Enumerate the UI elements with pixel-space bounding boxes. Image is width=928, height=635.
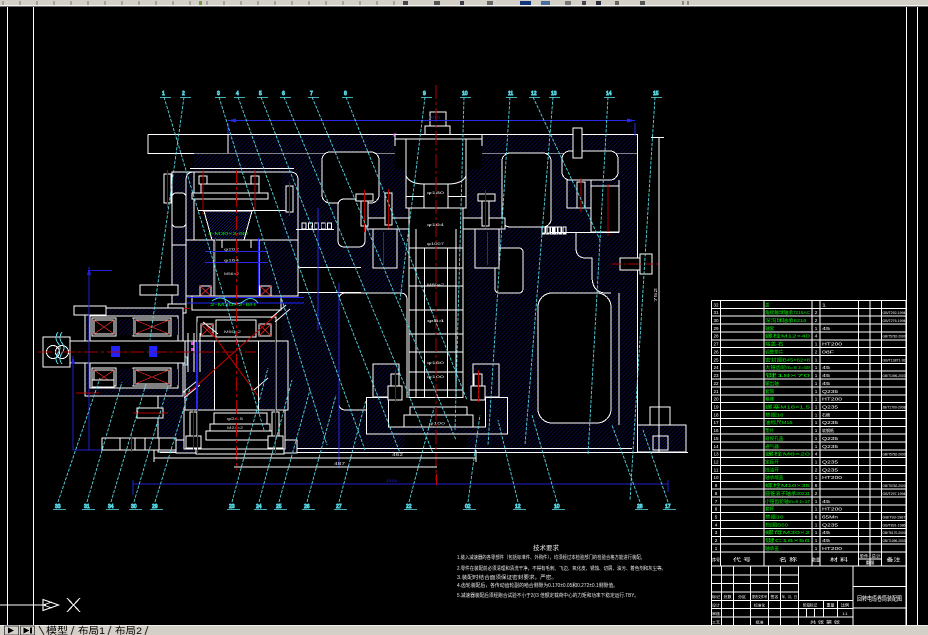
svg-text:φ54: φ54	[427, 318, 446, 323]
svg-text:4: 4	[715, 522, 718, 527]
svg-text:20: 20	[713, 397, 719, 402]
svg-text:GB/T1096-2003: GB/T1096-2003	[883, 539, 906, 543]
svg-text:φ180: φ180	[427, 190, 445, 195]
svg-text:2: 2	[815, 318, 818, 323]
svg-text:10: 10	[713, 475, 719, 480]
svg-text:套杯: 套杯	[765, 506, 775, 513]
svg-text:螺塞M18×1.5: 螺塞M18×1.5	[765, 403, 811, 410]
svg-text:GB/T5782-2000: GB/T5782-2000	[883, 335, 906, 339]
svg-text:8: 8	[344, 91, 347, 97]
svg-text:数量: 数量	[812, 557, 820, 564]
svg-text:技术要求: 技术要求	[533, 543, 560, 552]
svg-text:签名: 签名	[771, 594, 779, 599]
svg-text:HT200: HT200	[822, 475, 843, 480]
svg-text:GB/T6170-2000: GB/T6170-2000	[883, 531, 906, 535]
svg-text:φ1007: φ1007	[427, 241, 445, 246]
svg-text:布局2: 布局2	[115, 625, 142, 635]
svg-text:1:1: 1:1	[842, 612, 847, 616]
svg-text:1: 1	[815, 538, 818, 543]
svg-text:4: 4	[236, 91, 239, 97]
svg-text:2: 2	[715, 538, 718, 543]
svg-text:14: 14	[713, 444, 719, 449]
svg-text:工艺: 工艺	[712, 620, 720, 625]
svg-text:1: 1	[815, 381, 818, 386]
svg-text:φ100: φ100	[429, 421, 446, 426]
svg-text:12: 12	[713, 460, 719, 465]
svg-text:3.装配时结合面须保证密封要求，严密。: 3.装配时结合面须保证密封要求，严密。	[457, 574, 557, 581]
svg-text:螺栓M10×35: 螺栓M10×35	[765, 482, 811, 489]
svg-text:45: 45	[822, 326, 831, 331]
svg-text:27: 27	[713, 342, 719, 347]
svg-text:9: 9	[715, 483, 718, 488]
svg-text:2: 2	[815, 467, 818, 472]
svg-text:13: 13	[551, 91, 557, 97]
svg-text:33: 33	[55, 504, 61, 510]
svg-text:GB/T297-1994: GB/T297-1994	[883, 492, 906, 496]
svg-text:6: 6	[282, 91, 285, 97]
svg-text:2-M30×2-6H: 2-M30×2-6H	[208, 231, 248, 236]
svg-text:487: 487	[334, 461, 346, 466]
svg-text:GB/T5782-2000: GB/T5782-2000	[883, 484, 906, 488]
svg-text:7: 7	[715, 499, 718, 504]
svg-text:28: 28	[713, 334, 719, 339]
svg-text:13: 13	[713, 452, 719, 457]
svg-text:23: 23	[229, 504, 235, 510]
svg-text:HT200: HT200	[822, 546, 843, 551]
svg-text:φ164: φ164	[224, 258, 240, 263]
svg-text:HT200: HT200	[822, 397, 843, 402]
svg-text:21: 21	[713, 389, 719, 394]
svg-text:45: 45	[822, 373, 831, 378]
svg-text:GB/T276-1994: GB/T276-1994	[883, 319, 906, 323]
svg-text:30: 30	[131, 504, 137, 510]
svg-text:1: 1	[815, 436, 818, 441]
svg-text:处数: 处数	[724, 594, 732, 599]
svg-text:挡油环: 挡油环	[765, 466, 779, 473]
svg-text:26: 26	[713, 349, 719, 354]
svg-text:1: 1	[715, 546, 718, 551]
svg-text:备注: 备注	[887, 557, 901, 564]
svg-text:M56×2: M56×2	[224, 271, 240, 276]
svg-text:标记: 标记	[712, 594, 720, 599]
svg-text:19: 19	[713, 404, 719, 409]
svg-text:分区: 分区	[738, 594, 746, 599]
svg-text:φ164: φ164	[427, 222, 445, 227]
svg-text:1: 1	[815, 546, 818, 551]
svg-text:32: 32	[713, 302, 719, 307]
svg-text:M24×2: M24×2	[227, 425, 244, 430]
svg-text:752: 752	[653, 287, 658, 302]
svg-text:Q235: Q235	[822, 522, 839, 527]
svg-text:3: 3	[715, 530, 718, 535]
svg-text:1: 1	[815, 420, 818, 425]
svg-text:2: 2	[815, 349, 818, 354]
svg-text:1: 1	[815, 389, 818, 394]
svg-text:31: 31	[713, 310, 719, 315]
svg-text:1: 1	[815, 522, 818, 527]
svg-text:密封圈B45×62×8: 密封圈B45×62×8	[765, 356, 811, 363]
svg-text:1: 1	[815, 412, 818, 417]
svg-text:30: 30	[713, 318, 719, 323]
svg-text:盖: 盖	[765, 301, 770, 307]
svg-text:石棉: 石棉	[822, 411, 830, 418]
svg-text:12: 12	[515, 504, 521, 510]
svg-text:1: 1	[815, 404, 818, 409]
svg-text:垫圈18: 垫圈18	[765, 411, 784, 418]
svg-text:HT200: HT200	[822, 507, 843, 512]
svg-text:批准: 批准	[756, 620, 764, 625]
svg-text:角接触球轴承7216AC: 角接触球轴承7216AC	[765, 309, 811, 316]
svg-text:GB/T5782-2000: GB/T5782-2000	[883, 453, 906, 457]
svg-text:Q235: Q235	[822, 404, 839, 409]
svg-text:22: 22	[406, 504, 412, 510]
svg-text:GB/T1096-2003: GB/T1096-2003	[883, 374, 906, 378]
svg-text:8: 8	[715, 491, 718, 496]
svg-text:重量: 重量	[866, 559, 875, 565]
svg-text:JB/T1700-2008: JB/T1700-2008	[883, 405, 906, 409]
svg-text:15: 15	[653, 91, 659, 97]
svg-text:单件: 单件	[860, 554, 869, 559]
svg-text:重量: 重量	[827, 603, 835, 608]
svg-text:25: 25	[276, 504, 282, 510]
svg-text:GB/T292-1994: GB/T292-1994	[883, 311, 906, 315]
svg-text:φ202: φ202	[224, 247, 240, 252]
svg-text:轴承盖: 轴承盖	[765, 545, 779, 552]
svg-text:4: 4	[815, 452, 818, 457]
svg-text:1: 1	[815, 530, 818, 535]
svg-text:17: 17	[665, 504, 671, 510]
svg-text:圆锥滚子轴承30211: 圆锥滚子轴承30211	[765, 490, 810, 497]
svg-text:Q235: Q235	[822, 444, 839, 449]
svg-text:7: 7	[310, 91, 313, 97]
svg-text:26: 26	[304, 504, 310, 510]
svg-text:29: 29	[152, 504, 158, 510]
svg-text:11: 11	[508, 91, 513, 97]
svg-text:M80×2: M80×2	[427, 282, 445, 287]
svg-text:Q235: Q235	[822, 389, 839, 394]
svg-text:31: 31	[84, 504, 90, 510]
svg-text:1: 1	[815, 397, 818, 402]
svg-text:2.零件在装配前必须清理和清洗干净，不得有毛刺、飞边、氧化皮: 2.零件在装配前必须清理和清洗干净，不得有毛刺、飞边、氧化皮、锈蚀、切屑、油污、…	[457, 565, 666, 572]
svg-text:2-M30×2-6H: 2-M30×2-6H	[210, 302, 256, 307]
svg-text:Q235: Q235	[822, 460, 839, 465]
svg-text:08F: 08F	[822, 349, 835, 354]
svg-text:GB/T93-1987: GB/T93-1987	[883, 516, 906, 520]
svg-text:1: 1	[815, 428, 818, 433]
svg-text:2: 2	[182, 91, 185, 97]
svg-text:φ24.5: φ24.5	[227, 416, 244, 421]
svg-text:大锥齿轮m=6 z=58: 大锥齿轮m=6 z=58	[765, 364, 811, 371]
svg-text:14: 14	[606, 91, 612, 97]
svg-text:1: 1	[815, 507, 818, 512]
svg-text:调整垫片: 调整垫片	[765, 348, 784, 355]
svg-text:挡圈B60: 挡圈B60	[765, 521, 789, 528]
svg-text:18: 18	[713, 412, 719, 417]
svg-text:2: 2	[815, 491, 818, 496]
svg-text:2: 2	[815, 310, 818, 315]
svg-text:轴套: 轴套	[765, 325, 775, 332]
svg-text:Q235: Q235	[822, 467, 839, 472]
svg-text:15: 15	[713, 436, 719, 441]
svg-text:1: 1	[815, 499, 818, 504]
svg-text:GB/T891-1986: GB/T891-1986	[883, 523, 906, 527]
svg-text:29: 29	[713, 326, 719, 331]
svg-text:GB/T13871-92: GB/T13871-92	[883, 358, 906, 362]
svg-text:套筒: 套筒	[765, 388, 775, 395]
svg-text:1518: 1518	[386, 478, 398, 483]
svg-text:键18×70: 键18×70	[765, 372, 811, 379]
svg-text:24: 24	[713, 365, 719, 370]
svg-text:螺栓M12×40: 螺栓M12×40	[765, 333, 811, 340]
svg-text:Q235: Q235	[822, 436, 839, 441]
svg-text:27: 27	[336, 504, 342, 510]
svg-text:软钢纸: 软钢纸	[822, 427, 835, 434]
svg-text:1: 1	[815, 342, 818, 347]
svg-text:17: 17	[713, 420, 719, 425]
svg-text:M50×2: M50×2	[224, 329, 242, 334]
svg-text:布局1: 布局1	[78, 625, 105, 635]
svg-text:1: 1	[815, 444, 818, 449]
svg-text:5: 5	[259, 91, 262, 97]
svg-text:3: 3	[217, 91, 220, 97]
svg-text:螺栓M8×20: 螺栓M8×20	[765, 451, 811, 458]
svg-text:1: 1	[815, 373, 818, 378]
svg-text:45: 45	[822, 530, 831, 535]
svg-text:6: 6	[715, 507, 718, 512]
svg-text:11: 11	[714, 467, 719, 472]
svg-text:462: 462	[392, 452, 404, 457]
svg-text:22: 22	[713, 381, 719, 386]
svg-text:45: 45	[822, 381, 831, 386]
svg-text:45: 45	[822, 538, 831, 543]
svg-text:12: 12	[531, 91, 537, 97]
svg-text:1: 1	[815, 475, 818, 480]
svg-text:深沟球轴承6216: 深沟球轴承6216	[765, 317, 807, 324]
svg-text:定距环: 定距环	[765, 459, 779, 466]
svg-text:1: 1	[815, 326, 818, 331]
svg-text:模型: 模型	[46, 625, 69, 635]
svg-text:45: 45	[822, 365, 831, 370]
svg-text:10: 10	[554, 504, 560, 510]
svg-text:端盖-右: 端盖-右	[765, 341, 784, 348]
svg-text:通气器: 通气器	[765, 443, 779, 450]
svg-text:回转电缆卷筒装配图: 回转电缆卷筒装配图	[857, 594, 902, 603]
svg-text:16: 16	[713, 428, 719, 433]
svg-text:年、月、日: 年、月、日	[782, 594, 797, 599]
svg-text:设计: 设计	[712, 603, 720, 608]
svg-text:螺母M30×2: 螺母M30×2	[765, 529, 811, 536]
svg-text:输出轴: 输出轴	[765, 380, 779, 387]
svg-text:1: 1	[815, 460, 818, 465]
svg-text:5.减速器装配后须经跑合试验不小于2(/3 倍额定载荷中心的: 5.减速器装配后须经跑合试验不小于2(/3 倍额定载荷中心的力矩和功率下稳定运行…	[457, 592, 639, 599]
svg-text:28: 28	[637, 504, 643, 510]
svg-text:4.齿轮装配后，各传动齿轮副的啮合侧隙为0.170±0.05: 4.齿轮装配后，各传动齿轮副的啮合侧隙为0.170±0.05和0.272±0.1…	[457, 582, 618, 589]
svg-text:23: 23	[713, 373, 719, 378]
svg-text:1: 1	[815, 365, 818, 370]
svg-text:油标尺M16: 油标尺M16	[765, 419, 793, 426]
svg-text:1010: 1010	[428, 115, 441, 120]
svg-text:1.装入减速器的各零部件（包括标准件、外购件），均须经过本检: 1.装入减速器的各零部件（包括标准件、外购件），均须经过本检验部门的检验合格方能…	[457, 554, 645, 561]
svg-text:6: 6	[815, 515, 818, 520]
svg-text:34: 34	[108, 504, 114, 510]
svg-text:序号: 序号	[712, 557, 720, 564]
svg-text:标准化: 标准化	[754, 603, 765, 608]
svg-text:轴承端盖: 轴承端盖	[765, 474, 784, 481]
svg-text:键C16×56: 键C16×56	[765, 537, 811, 544]
svg-text:65Mn: 65Mn	[822, 515, 839, 520]
svg-text:02: 02	[465, 504, 471, 510]
svg-text:箱座: 箱座	[765, 396, 775, 403]
svg-text:小锥齿轮轴m=6 z=17: 小锥齿轮轴m=6 z=17	[765, 498, 810, 505]
svg-text:24: 24	[256, 504, 262, 510]
svg-text:材 料: 材 料	[830, 557, 848, 564]
svg-text:25: 25	[713, 357, 719, 362]
svg-text:9: 9	[423, 91, 426, 97]
svg-text:10: 10	[462, 91, 468, 97]
svg-text:1: 1	[162, 91, 165, 97]
svg-text:45: 45	[822, 499, 831, 504]
svg-text:6: 6	[815, 483, 818, 488]
svg-text:比例: 比例	[841, 603, 849, 608]
svg-text:窥视孔盖: 窥视孔盖	[765, 435, 784, 442]
svg-text:垫圈10: 垫圈10	[765, 514, 784, 521]
svg-text:共 张 第 张: 共 张 第 张	[810, 620, 840, 625]
svg-text:1: 1	[815, 357, 818, 362]
svg-text:5: 5	[715, 515, 718, 520]
svg-text:阶段标记: 阶段标记	[803, 603, 817, 608]
svg-text:Q235: Q235	[822, 420, 839, 425]
svg-text:更改文件号: 更改文件号	[752, 594, 767, 599]
svg-text:垫片: 垫片	[765, 427, 775, 434]
svg-text:审核: 审核	[712, 611, 720, 616]
svg-text:名 称: 名 称	[779, 557, 797, 564]
svg-text:φ160: φ160	[427, 360, 445, 365]
svg-text:总计: 总计	[872, 554, 881, 559]
svg-text:4: 4	[815, 334, 818, 339]
svg-text:代 号: 代 号	[733, 557, 751, 564]
svg-text:HT200: HT200	[822, 342, 843, 347]
